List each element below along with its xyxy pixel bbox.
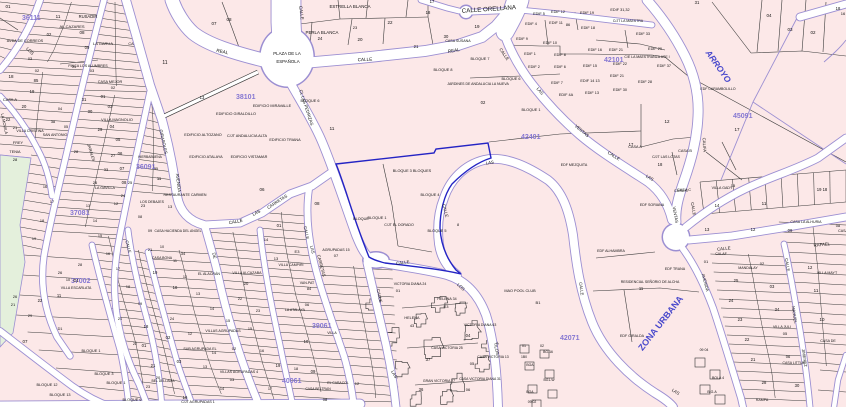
svg-text:EDIF 20: EDIF 20 bbox=[648, 47, 662, 51]
svg-text:17: 17 bbox=[50, 200, 54, 204]
svg-text:BLOQUE 1: BLOQUE 1 bbox=[368, 216, 387, 220]
svg-text:22: 22 bbox=[38, 298, 43, 303]
svg-text:BLOQUE 13: BLOQUE 13 bbox=[49, 393, 70, 397]
svg-text:35: 35 bbox=[154, 167, 158, 171]
svg-text:22: 22 bbox=[133, 342, 137, 346]
svg-text:08: 08 bbox=[836, 223, 841, 228]
svg-text:BLOQUE: BLOQUE bbox=[353, 217, 369, 221]
svg-text:CASA C: CASA C bbox=[677, 188, 691, 192]
svg-text:CASILA: CASILA bbox=[3, 97, 18, 102]
svg-text:09 04: 09 04 bbox=[700, 348, 709, 352]
svg-text:07: 07 bbox=[334, 253, 339, 258]
svg-text:EL CARACOL: EL CARACOL bbox=[327, 381, 348, 385]
svg-text:ESPAÑOLA: ESPAÑOLA bbox=[276, 59, 299, 64]
svg-text:06: 06 bbox=[305, 302, 310, 307]
svg-text:EDIF 11: EDIF 11 bbox=[549, 21, 563, 25]
svg-text:04: 04 bbox=[72, 64, 77, 69]
svg-text:20: 20 bbox=[22, 104, 27, 109]
svg-text:BEL DELLAMA: BEL DELLAMA bbox=[151, 379, 175, 383]
svg-text:25: 25 bbox=[734, 278, 739, 283]
svg-text:30: 30 bbox=[88, 109, 93, 114]
svg-text:EDIF 16: EDIF 16 bbox=[588, 48, 602, 52]
svg-text:19: 19 bbox=[153, 270, 158, 275]
svg-text:07: 07 bbox=[211, 21, 217, 26]
svg-text:11: 11 bbox=[173, 259, 177, 263]
svg-text:VILLA GADY: VILLA GADY bbox=[712, 186, 733, 190]
svg-text:22: 22 bbox=[745, 337, 750, 342]
svg-text:23: 23 bbox=[738, 317, 743, 322]
svg-text:12: 12 bbox=[751, 227, 756, 232]
svg-text:EDIFICIO GIRALDILLO: EDIFICIO GIRALDILLO bbox=[216, 112, 256, 116]
svg-text:01: 01 bbox=[396, 288, 401, 293]
svg-text:BGA: BGA bbox=[526, 390, 534, 394]
svg-text:40061: 40061 bbox=[282, 378, 302, 385]
svg-text:PERLA BLANCA: PERLA BLANCA bbox=[306, 30, 339, 35]
svg-text:AGRUPADAS 15: AGRUPADAS 15 bbox=[322, 248, 349, 252]
svg-text:09: 09 bbox=[85, 45, 90, 50]
svg-text:28: 28 bbox=[13, 157, 18, 162]
svg-text:E3: E3 bbox=[295, 249, 301, 254]
svg-text:02: 02 bbox=[481, 100, 486, 105]
svg-text:16: 16 bbox=[841, 11, 846, 16]
svg-text:EDIF 2: EDIF 2 bbox=[528, 65, 540, 69]
svg-text:D1: D1 bbox=[73, 278, 79, 283]
svg-text:24: 24 bbox=[170, 317, 174, 321]
svg-text:EDF TRANA: EDF TRANA bbox=[665, 267, 686, 271]
svg-text:13: 13 bbox=[203, 365, 207, 369]
svg-text:01: 01 bbox=[704, 259, 709, 264]
svg-text:13: 13 bbox=[705, 227, 710, 232]
svg-text:10: 10 bbox=[160, 245, 164, 249]
svg-text:13: 13 bbox=[196, 292, 200, 296]
svg-text:08: 08 bbox=[323, 397, 328, 402]
svg-text:07: 07 bbox=[120, 166, 125, 171]
svg-text:36091: 36091 bbox=[136, 164, 156, 171]
svg-text:BLOQUE 6: BLOQUE 6 bbox=[123, 398, 142, 402]
svg-text:BGA: BGA bbox=[526, 363, 534, 367]
svg-text:EDIF 13: EDIF 13 bbox=[585, 91, 599, 95]
svg-text:23: 23 bbox=[353, 25, 358, 30]
svg-text:EDIFICIO VISTAMAR: EDIFICIO VISTAMAR bbox=[231, 155, 268, 159]
svg-text:BLOQUE 5: BLOQUE 5 bbox=[428, 229, 447, 233]
svg-text:24: 24 bbox=[729, 298, 734, 303]
svg-text:BOLA 4: BOLA 4 bbox=[712, 376, 724, 380]
svg-text:01: 01 bbox=[101, 94, 106, 99]
svg-text:03: 03 bbox=[770, 284, 775, 289]
svg-text:08: 08 bbox=[138, 215, 142, 219]
svg-text:HELENA: HELENA bbox=[404, 316, 420, 320]
svg-text:11: 11 bbox=[57, 293, 62, 298]
svg-text:15: 15 bbox=[248, 327, 252, 331]
svg-text:8: 8 bbox=[457, 223, 459, 227]
svg-text:LA GARUA: LA GARUA bbox=[93, 41, 113, 46]
svg-text:18: 18 bbox=[426, 10, 431, 15]
svg-text:BLOQUE 1: BLOQUE 1 bbox=[522, 108, 541, 112]
svg-text:28: 28 bbox=[78, 263, 82, 267]
svg-text:D1: D1 bbox=[58, 327, 63, 331]
svg-text:EDIF 37: EDIF 37 bbox=[657, 64, 671, 68]
svg-text:26: 26 bbox=[58, 270, 63, 275]
svg-text:39061: 39061 bbox=[312, 323, 332, 330]
svg-text:18: 18 bbox=[126, 285, 130, 289]
svg-text:34: 34 bbox=[775, 307, 780, 312]
svg-text:27: 27 bbox=[111, 153, 116, 158]
svg-text:VILLA ALCAZABA: VILLA ALCAZABA bbox=[232, 271, 262, 275]
svg-text:01: 01 bbox=[277, 223, 282, 228]
svg-text:VILLA MAYT: VILLA MAYT bbox=[817, 271, 838, 275]
svg-text:19: 19 bbox=[32, 237, 36, 241]
svg-text:RUSADIR: RUSADIR bbox=[79, 14, 98, 19]
svg-text:CASA: CASA bbox=[838, 229, 846, 233]
svg-text:17: 17 bbox=[734, 127, 740, 132]
svg-text:03: 03 bbox=[28, 57, 32, 61]
svg-text:EDIF 6: EDIF 6 bbox=[554, 65, 566, 69]
svg-text:13: 13 bbox=[200, 95, 205, 100]
svg-text:36111: 36111 bbox=[22, 15, 41, 22]
svg-text:06: 06 bbox=[259, 187, 265, 192]
svg-text:16: 16 bbox=[106, 252, 110, 256]
svg-text:EDIF 28: EDIF 28 bbox=[638, 80, 652, 84]
svg-text:19: 19 bbox=[30, 89, 35, 94]
svg-text:LOS DEBAJES: LOS DEBAJES bbox=[140, 200, 165, 204]
svg-text:CASA VICTORIA DIANA 31: CASA VICTORIA DIANA 31 bbox=[459, 377, 501, 381]
svg-text:34: 34 bbox=[181, 251, 186, 256]
svg-text:EDIF 14 13: EDIF 14 13 bbox=[580, 79, 599, 83]
svg-text:03: 03 bbox=[90, 68, 95, 73]
svg-text:C/JT LAS LOTAS: C/JT LAS LOTAS bbox=[652, 155, 680, 159]
svg-text:03: 03 bbox=[177, 359, 182, 364]
svg-text:11: 11 bbox=[639, 286, 644, 291]
svg-text:12: 12 bbox=[188, 332, 192, 336]
svg-text:21: 21 bbox=[414, 44, 419, 49]
svg-text:CASA VICTORIA 25: CASA VICTORIA 25 bbox=[431, 346, 463, 350]
svg-text:02: 02 bbox=[111, 85, 116, 90]
svg-text:17: 17 bbox=[116, 267, 120, 271]
svg-text:09: 09 bbox=[788, 228, 793, 233]
svg-text:JARDINES DE ANDALUCIA LA NUEVA: JARDINES DE ANDALUCIA LA NUEVA bbox=[447, 82, 509, 86]
svg-text:12: 12 bbox=[355, 381, 360, 386]
svg-text:24: 24 bbox=[318, 36, 323, 41]
svg-text:BLOQUE 4: BLOQUE 4 bbox=[421, 193, 440, 197]
svg-text:18: 18 bbox=[8, 74, 14, 79]
svg-text:MAO POOL CLUB: MAO POOL CLUB bbox=[504, 289, 536, 293]
svg-text:24: 24 bbox=[121, 193, 126, 198]
svg-text:17: 17 bbox=[268, 387, 272, 391]
svg-text:C/E LA MAESTRANZA ASE I: C/E LA MAESTRANZA ASE I bbox=[624, 55, 669, 59]
svg-text:18: 18 bbox=[294, 367, 298, 371]
svg-text:CA: CA bbox=[128, 42, 134, 46]
svg-text:EDIF 21: EDIF 21 bbox=[610, 74, 624, 78]
svg-text:05: 05 bbox=[470, 361, 475, 366]
svg-text:EDIF 30: EDIF 30 bbox=[613, 88, 627, 92]
svg-text:05: 05 bbox=[64, 125, 68, 129]
svg-text:HELENA 34: HELENA 34 bbox=[437, 297, 456, 301]
svg-text:18: 18 bbox=[173, 285, 178, 290]
svg-text:09: 09 bbox=[311, 369, 316, 374]
svg-text:CASA DE: CASA DE bbox=[820, 339, 836, 343]
svg-text:03: 03 bbox=[108, 104, 113, 109]
svg-text:04: 04 bbox=[766, 13, 772, 18]
svg-text:TENIA: TENIA bbox=[9, 150, 21, 154]
svg-text:02: 02 bbox=[760, 261, 765, 266]
svg-text:BLOQUE 6: BLOQUE 6 bbox=[502, 77, 521, 81]
svg-text:02: 02 bbox=[166, 335, 171, 340]
svg-text:11: 11 bbox=[762, 201, 767, 206]
svg-text:FREY: FREY bbox=[13, 141, 24, 145]
svg-text:EDIFICIO ALTOZANO: EDIFICIO ALTOZANO bbox=[184, 133, 221, 137]
svg-text:CALAF: CALAF bbox=[715, 252, 727, 256]
svg-text:16: 16 bbox=[43, 185, 47, 189]
svg-text:13: 13 bbox=[274, 256, 279, 261]
svg-text:BLOQUE 3: BLOQUE 3 bbox=[95, 372, 114, 376]
svg-text:EDIF 10: EDIF 10 bbox=[543, 41, 557, 45]
svg-text:04: 04 bbox=[110, 124, 115, 129]
svg-text:EL ALACRÁN: EL ALACRÁN bbox=[198, 272, 220, 276]
svg-text:EDIFICIO MIRAVALLE: EDIFICIO MIRAVALLE bbox=[253, 104, 292, 108]
svg-text:CASA MEJOR: CASA MEJOR bbox=[98, 80, 123, 84]
svg-text:VILLAS AGRUPADAS 4: VILLAS AGRUPADAS 4 bbox=[220, 370, 258, 374]
svg-text:08: 08 bbox=[79, 30, 85, 35]
svg-text:11: 11 bbox=[162, 60, 167, 66]
svg-text:21: 21 bbox=[13, 125, 18, 130]
svg-text:BLOQUE 12: BLOQUE 12 bbox=[36, 383, 57, 387]
svg-text:BG-16: BG-16 bbox=[543, 350, 553, 354]
svg-text:08: 08 bbox=[122, 180, 127, 185]
svg-text:14: 14 bbox=[210, 307, 214, 311]
svg-text:86: 86 bbox=[566, 23, 570, 27]
svg-text:GRAN VICTORIA 27: GRAN VICTORIA 27 bbox=[423, 379, 455, 383]
svg-text:08: 08 bbox=[314, 201, 320, 206]
svg-text:10: 10 bbox=[819, 317, 825, 322]
svg-text:BG1-W: BG1-W bbox=[543, 378, 555, 382]
svg-text:15: 15 bbox=[226, 319, 230, 323]
svg-text:EDIF 8: EDIF 8 bbox=[554, 53, 566, 57]
svg-text:23: 23 bbox=[146, 385, 150, 389]
svg-text:17: 17 bbox=[430, 0, 435, 4]
svg-text:EDIF 22: EDIF 22 bbox=[613, 62, 627, 66]
svg-text:VILLA CAMPIRI: VILLA CAMPIRI bbox=[279, 263, 304, 267]
svg-text:20: 20 bbox=[244, 281, 249, 286]
svg-text:ESTRELLA BLANCA: ESTRELLA BLANCA bbox=[330, 4, 371, 9]
svg-text:26: 26 bbox=[93, 180, 98, 185]
svg-text:21: 21 bbox=[148, 247, 153, 252]
svg-text:25: 25 bbox=[128, 180, 133, 185]
svg-text:42071: 42071 bbox=[560, 335, 580, 342]
svg-text:CASA B: CASA B bbox=[678, 149, 692, 153]
svg-text:21: 21 bbox=[118, 317, 122, 321]
svg-text:CASA BONA: CASA BONA bbox=[152, 256, 173, 260]
svg-text:C/JT ANDALUCIA ALTA: C/JT ANDALUCIA ALTA bbox=[227, 134, 268, 138]
svg-text:EDF GIRALDA: EDF GIRALDA bbox=[620, 334, 645, 338]
svg-text:23: 23 bbox=[256, 309, 260, 313]
svg-text:22: 22 bbox=[238, 297, 242, 301]
svg-text:31: 31 bbox=[695, 0, 700, 5]
svg-text:LA ATALAYA: LA ATALAYA bbox=[285, 308, 306, 312]
svg-text:02: 02 bbox=[810, 30, 816, 35]
svg-text:EDIF 19: EDIF 19 bbox=[580, 11, 594, 15]
svg-text:14: 14 bbox=[220, 387, 224, 391]
svg-text:EDIFICIO ATALAYA: EDIFICIO ATALAYA bbox=[189, 155, 223, 159]
svg-text:31: 31 bbox=[82, 97, 87, 102]
svg-text:06: 06 bbox=[118, 151, 123, 156]
svg-text:14: 14 bbox=[264, 237, 269, 242]
svg-text:15: 15 bbox=[731, 183, 736, 188]
svg-text:VILLA: VILLA bbox=[327, 331, 337, 335]
svg-text:21: 21 bbox=[151, 363, 156, 368]
svg-text:CASA HACIENDA DEL ANGEL: CASA HACIENDA DEL ANGEL bbox=[155, 229, 202, 233]
svg-text:10: 10 bbox=[66, 278, 70, 282]
svg-text:04: 04 bbox=[58, 107, 62, 111]
svg-text:EDIF 12: EDIF 12 bbox=[551, 10, 565, 14]
svg-text:02: 02 bbox=[232, 346, 237, 351]
svg-text:CASA LA ALHURIA: CASA LA ALHURIA bbox=[790, 220, 822, 224]
svg-text:EDF CARAMBOLILLO: EDF CARAMBOLILLO bbox=[700, 87, 735, 91]
svg-text:02: 02 bbox=[540, 344, 544, 348]
svg-text:EDF SORIANA: EDF SORIANA bbox=[640, 203, 665, 207]
svg-text:08: 08 bbox=[226, 17, 232, 22]
svg-text:EDIF 15: EDIF 15 bbox=[583, 64, 597, 68]
svg-text:CALLE: CALLE bbox=[358, 57, 373, 63]
svg-text:11: 11 bbox=[56, 14, 61, 19]
svg-text:RESIDENCIAL SEÑORIO DE ALCHA: RESIDENCIAL SEÑORIO DE ALCHA bbox=[621, 279, 680, 284]
svg-text:VILLA ESCARLATA: VILLA ESCARLATA bbox=[61, 286, 92, 290]
svg-text:28: 28 bbox=[74, 149, 79, 154]
svg-text:13: 13 bbox=[86, 204, 90, 208]
svg-text:85: 85 bbox=[34, 78, 39, 83]
svg-text:LA GAVILLA: LA GAVILLA bbox=[95, 186, 116, 190]
svg-text:EDIF 31,32: EDIF 31,32 bbox=[610, 8, 629, 12]
svg-text:28: 28 bbox=[762, 380, 767, 385]
svg-text:B1: B1 bbox=[536, 300, 542, 305]
svg-text:02: 02 bbox=[47, 32, 52, 37]
svg-text:BLOQUE 3 BLOQUES: BLOQUE 3 BLOQUES bbox=[393, 169, 432, 173]
svg-text:HIERBABUENA: HIERBABUENA bbox=[138, 155, 162, 159]
svg-text:02: 02 bbox=[35, 68, 40, 73]
svg-text:17: 17 bbox=[629, 142, 634, 147]
svg-text:EDF ALHAMBRA: EDF ALHAMBRA bbox=[597, 249, 625, 253]
svg-text:VILLA MAGNOLIO: VILLA MAGNOLIO bbox=[101, 118, 133, 122]
svg-text:PLAZA DE LA: PLAZA DE LA bbox=[273, 51, 301, 56]
svg-text:38101: 38101 bbox=[236, 94, 256, 101]
svg-text:EDF MEZQUITA: EDF MEZQUITA bbox=[561, 163, 588, 167]
svg-text:19 18: 19 18 bbox=[817, 187, 828, 192]
svg-text:CASA VICTORIA 13: CASA VICTORIA 13 bbox=[477, 355, 509, 359]
svg-text:03: 03 bbox=[230, 377, 235, 382]
svg-text:21: 21 bbox=[11, 302, 16, 307]
svg-text:12: 12 bbox=[114, 201, 119, 206]
svg-text:AVDA DE CORREOS: AVDA DE CORREOS bbox=[7, 39, 44, 43]
svg-text:BLOQUE 6: BLOQUE 6 bbox=[301, 99, 320, 103]
svg-text:VILLA CRISTINA: VILLA CRISTINA bbox=[16, 129, 44, 133]
svg-text:19: 19 bbox=[276, 363, 281, 368]
svg-text:BLOQUE 1: BLOQUE 1 bbox=[82, 349, 101, 353]
svg-text:MANDALAY: MANDALAY bbox=[738, 266, 758, 270]
svg-text:19: 19 bbox=[474, 24, 480, 29]
svg-text:EDIF 4: EDIF 4 bbox=[525, 22, 537, 26]
svg-text:07: 07 bbox=[22, 339, 28, 344]
svg-text:BLOQUE 7: BLOQUE 7 bbox=[471, 57, 490, 61]
svg-text:18: 18 bbox=[40, 219, 44, 223]
svg-text:18: 18 bbox=[144, 324, 149, 329]
svg-text:VAN-PAT: VAN-PAT bbox=[300, 281, 315, 285]
svg-text:EDIF 5: EDIF 5 bbox=[533, 12, 545, 16]
svg-text:06: 06 bbox=[786, 354, 791, 359]
svg-text:01: 01 bbox=[522, 344, 526, 348]
svg-text:EDIF 7: EDIF 7 bbox=[551, 81, 563, 85]
svg-text:14: 14 bbox=[715, 203, 720, 208]
svg-text:14: 14 bbox=[212, 350, 217, 355]
svg-text:SAN ANTONIO: SAN ANTONIO bbox=[43, 133, 68, 137]
svg-text:05: 05 bbox=[783, 331, 788, 336]
svg-text:VICTORIA DIANA 63: VICTORIA DIANA 63 bbox=[464, 323, 497, 327]
svg-text:13: 13 bbox=[168, 204, 173, 209]
svg-text:22: 22 bbox=[387, 20, 393, 25]
svg-text:03: 03 bbox=[787, 27, 793, 32]
svg-text:E3: E3 bbox=[444, 304, 450, 309]
svg-text:EDIF 21: EDIF 21 bbox=[609, 48, 623, 52]
svg-text:12: 12 bbox=[664, 119, 670, 124]
svg-text:36: 36 bbox=[419, 387, 424, 392]
svg-text:RESTAURANTE CARMEN: RESTAURANTE CARMEN bbox=[163, 193, 206, 197]
svg-text:29: 29 bbox=[28, 314, 32, 318]
svg-text:CASA BELTRAN: CASA BELTRAN bbox=[305, 387, 331, 391]
svg-text:CASA SUSANA: CASA SUSANA bbox=[445, 39, 471, 43]
svg-text:EDIF 4A: EDIF 4A bbox=[559, 93, 574, 97]
svg-text:11: 11 bbox=[330, 126, 335, 132]
svg-text:C/JT LA MAESTRA: C/JT LA MAESTRA bbox=[613, 19, 644, 23]
svg-text:C/JT AGRUPADAS 1: C/JT AGRUPADAS 1 bbox=[181, 400, 215, 404]
svg-text:VILLA JULI: VILLA JULI bbox=[773, 325, 791, 329]
svg-text:06: 06 bbox=[466, 387, 471, 392]
svg-text:22: 22 bbox=[6, 117, 11, 122]
svg-text:12: 12 bbox=[183, 275, 187, 279]
svg-text:RAMPA: RAMPA bbox=[756, 398, 769, 402]
svg-text:20: 20 bbox=[357, 37, 363, 42]
svg-text:B.G.A: B.G.A bbox=[707, 390, 717, 394]
svg-text:01: 01 bbox=[142, 343, 147, 348]
svg-text:45091: 45091 bbox=[733, 113, 753, 120]
svg-text:21: 21 bbox=[751, 357, 756, 362]
svg-text:09,02: 09,02 bbox=[528, 400, 537, 404]
svg-text:EDIF 9: EDIF 9 bbox=[516, 37, 528, 41]
svg-text:01: 01 bbox=[5, 4, 11, 9]
svg-text:CASA LITTUM: CASA LITTUM bbox=[783, 361, 806, 365]
svg-text:VILLAS AGRUPADAS: VILLAS AGRUPADAS bbox=[205, 329, 241, 333]
svg-text:10: 10 bbox=[304, 339, 309, 344]
svg-text:19: 19 bbox=[138, 302, 142, 306]
svg-text:EDIF 1: EDIF 1 bbox=[524, 52, 536, 56]
svg-text:26: 26 bbox=[13, 295, 17, 299]
svg-text:84: 84 bbox=[307, 287, 311, 291]
svg-text:14: 14 bbox=[93, 219, 97, 223]
svg-text:42401: 42401 bbox=[521, 134, 541, 141]
svg-text:EDIFICIO TRIANA: EDIFICIO TRIANA bbox=[269, 138, 301, 142]
svg-text:AL-CAZARES: AL-CAZARES bbox=[59, 24, 84, 29]
svg-text:VICTORIA DIANA 24: VICTORIA DIANA 24 bbox=[394, 282, 427, 286]
svg-text:11: 11 bbox=[157, 176, 162, 181]
svg-text:29: 29 bbox=[98, 127, 103, 132]
svg-text:BLOQUE 1: BLOQUE 1 bbox=[107, 381, 126, 385]
svg-text:38: 38 bbox=[51, 119, 56, 124]
svg-text:09: 09 bbox=[148, 229, 152, 233]
svg-text:30: 30 bbox=[795, 383, 800, 388]
svg-text:18: 18 bbox=[658, 162, 663, 167]
svg-text:CALIFA: CALIFA bbox=[702, 138, 708, 153]
svg-text:04: 04 bbox=[466, 333, 471, 338]
svg-text:BLOQUE 8: BLOQUE 8 bbox=[434, 68, 453, 72]
svg-text:15: 15 bbox=[98, 234, 102, 238]
svg-text:EDIF 33: EDIF 33 bbox=[636, 32, 650, 36]
